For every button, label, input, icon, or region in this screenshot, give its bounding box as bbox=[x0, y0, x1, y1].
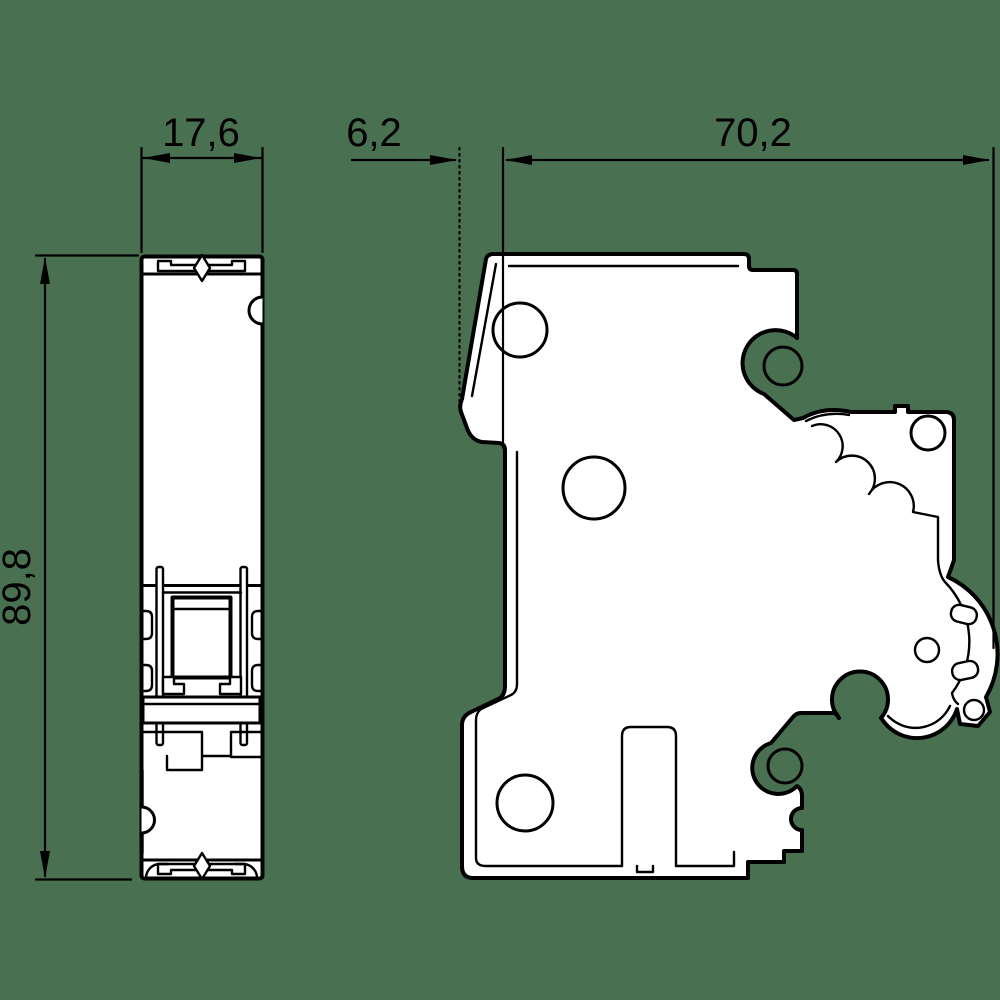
front-toggle-base-bar bbox=[143, 697, 260, 723]
front-view bbox=[141, 255, 263, 879]
dim-front-width-label: 17,6 bbox=[162, 111, 240, 155]
dim-height-label: 89,8 bbox=[0, 548, 39, 626]
front-right-edge-notch bbox=[249, 297, 263, 324]
dim-depth-label: 70,2 bbox=[714, 111, 792, 155]
dimension-drawing-canvas: 17,6 6,2 70,2 89,8 bbox=[0, 0, 1000, 1000]
dim-mount-offset-label: 6,2 bbox=[346, 111, 402, 155]
breaker-dimension-drawing: 17,6 6,2 70,2 89,8 bbox=[0, 0, 1000, 1000]
front-left-edge-notch bbox=[142, 807, 155, 833]
